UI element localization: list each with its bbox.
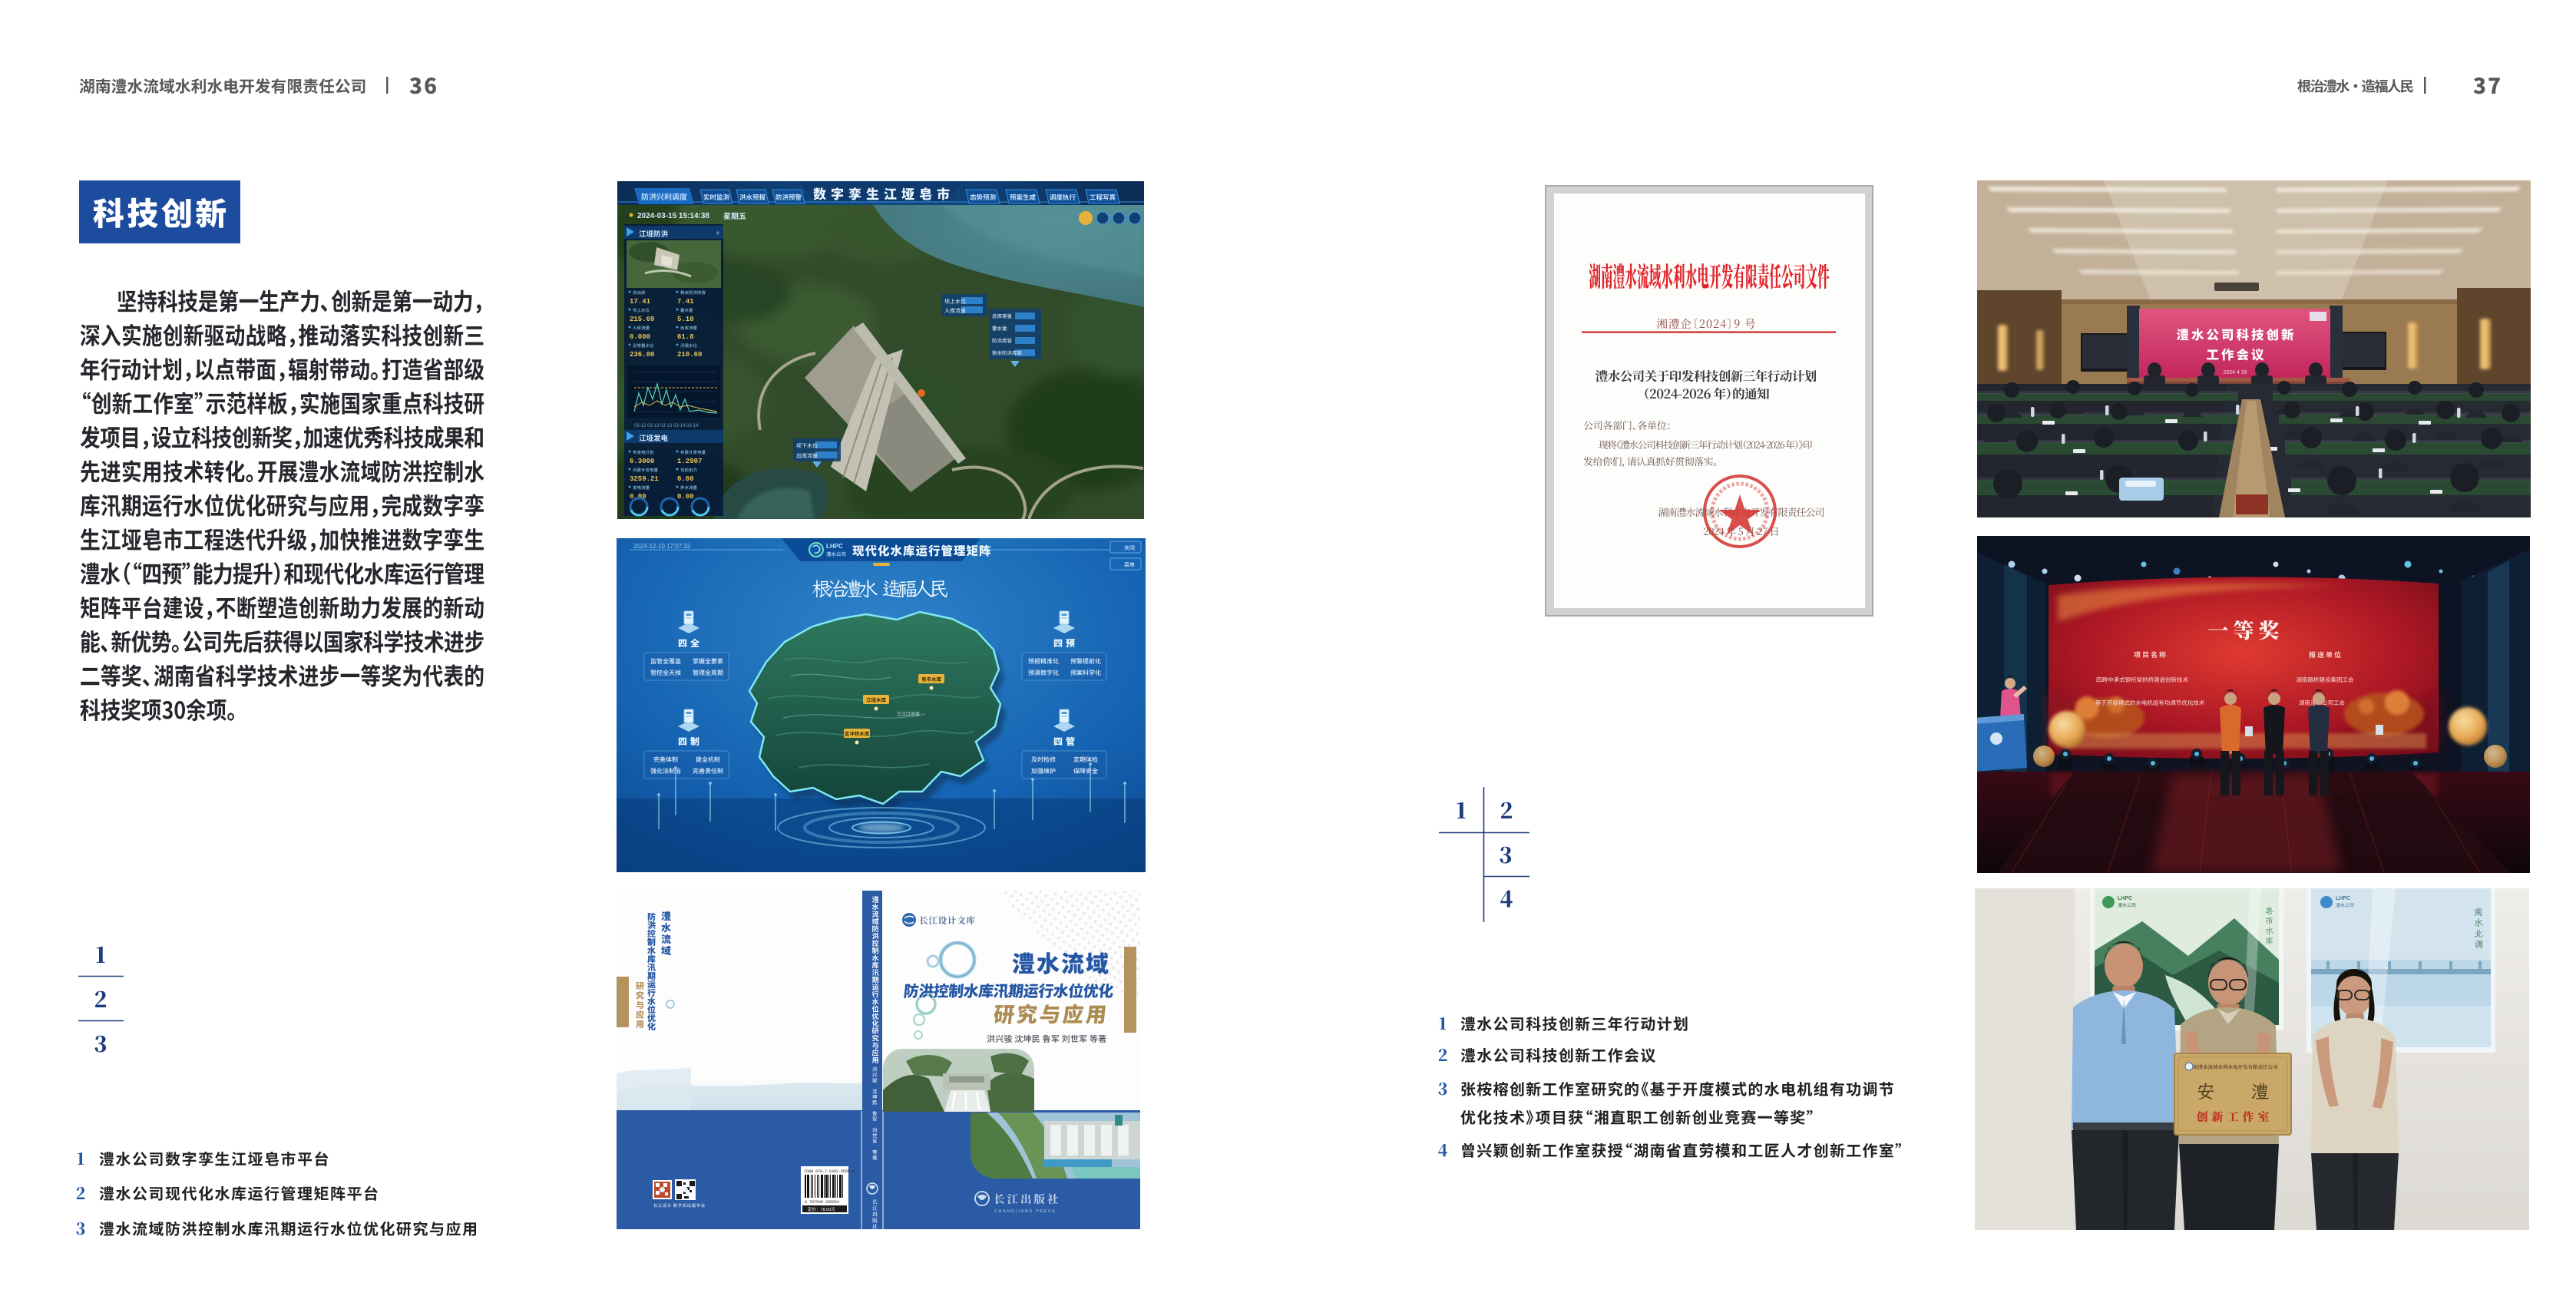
- svg-text:2024-03-15 15:14:38: 2024-03-15 15:14:38: [637, 212, 709, 220]
- svg-text:0.00: 0.00: [677, 493, 694, 501]
- svg-text:3259.21: 3259.21: [630, 475, 659, 483]
- svg-text:LHPC: LHPC: [2336, 896, 2350, 901]
- svg-text:CHANGJIANG PRESS: CHANGJIANG PRESS: [994, 1209, 1056, 1214]
- svg-text:2024 4 26: 2024 4 26: [2223, 370, 2247, 375]
- svg-text:+: +: [716, 230, 720, 238]
- svg-text:1.2907: 1.2907: [677, 458, 702, 465]
- svg-text:2024-12-10 17:07:32: 2024-12-10 17:07:32: [633, 543, 691, 550]
- svg-text:7.41: 7.41: [677, 298, 694, 306]
- svg-text:5.10: 5.10: [677, 316, 694, 323]
- svg-text:0.000: 0.000: [630, 333, 650, 341]
- svg-text:ISBN 978-7-5492-9565-4: ISBN 978-7-5492-9565-4: [804, 1169, 855, 1174]
- svg-text:0.00: 0.00: [677, 475, 694, 483]
- svg-text:61.8: 61.8: [677, 333, 694, 341]
- svg-text:210.60: 210.60: [677, 351, 702, 359]
- svg-text:定价：78.00元: 定价：78.00元: [808, 1206, 835, 1212]
- svg-text:LHPC: LHPC: [2118, 896, 2132, 901]
- svg-text:215.69: 215.69: [630, 316, 654, 323]
- svg-text:LHPC: LHPC: [826, 543, 843, 550]
- svg-text:17.41: 17.41: [630, 298, 651, 306]
- svg-text:03-12 03-13 03-13 03-14 03: 03-12 03-13 03-13 03-14 03-14: [634, 424, 699, 428]
- svg-text:6.3000: 6.3000: [630, 458, 654, 465]
- svg-text:9 787549 295654: 9 787549 295654: [805, 1200, 839, 1205]
- svg-text:236.00: 236.00: [630, 351, 654, 359]
